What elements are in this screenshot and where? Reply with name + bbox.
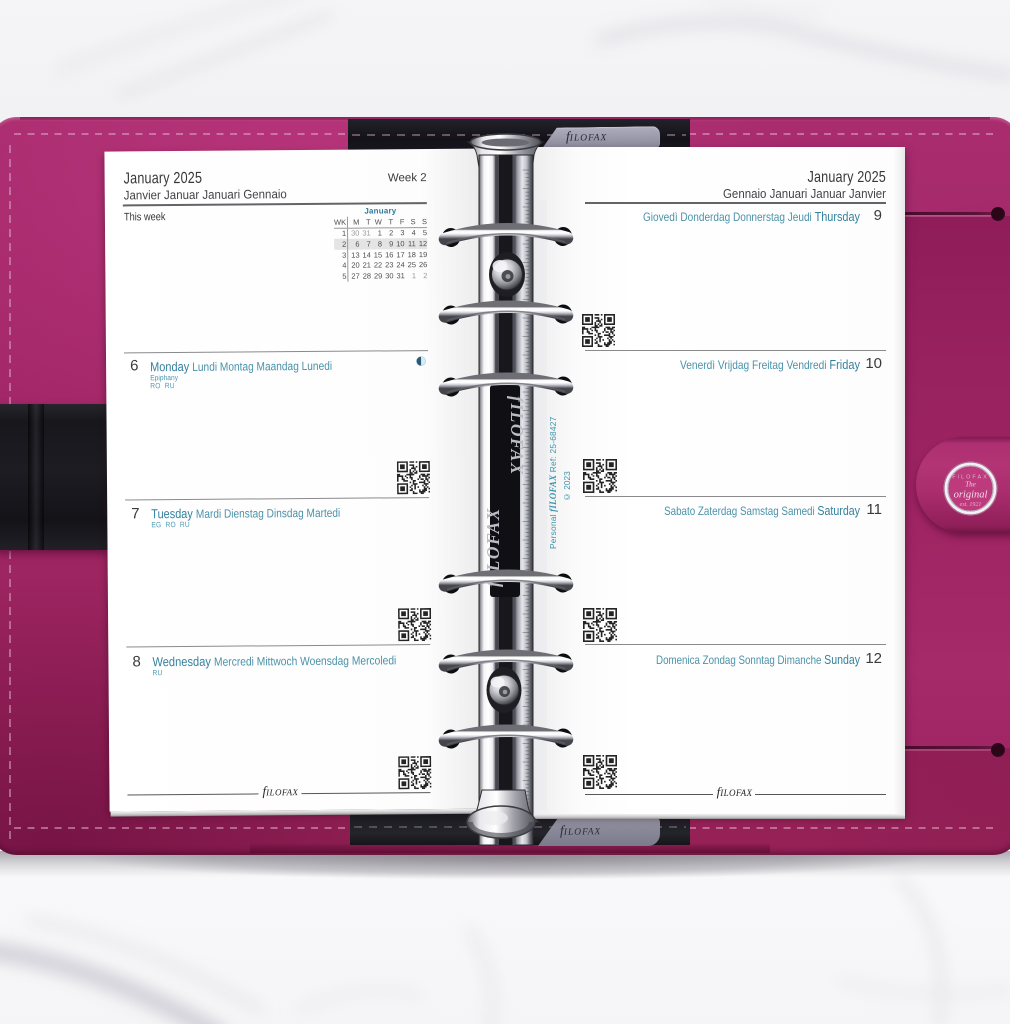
svg-text:fILOFAX: fILOFAX <box>507 396 527 476</box>
